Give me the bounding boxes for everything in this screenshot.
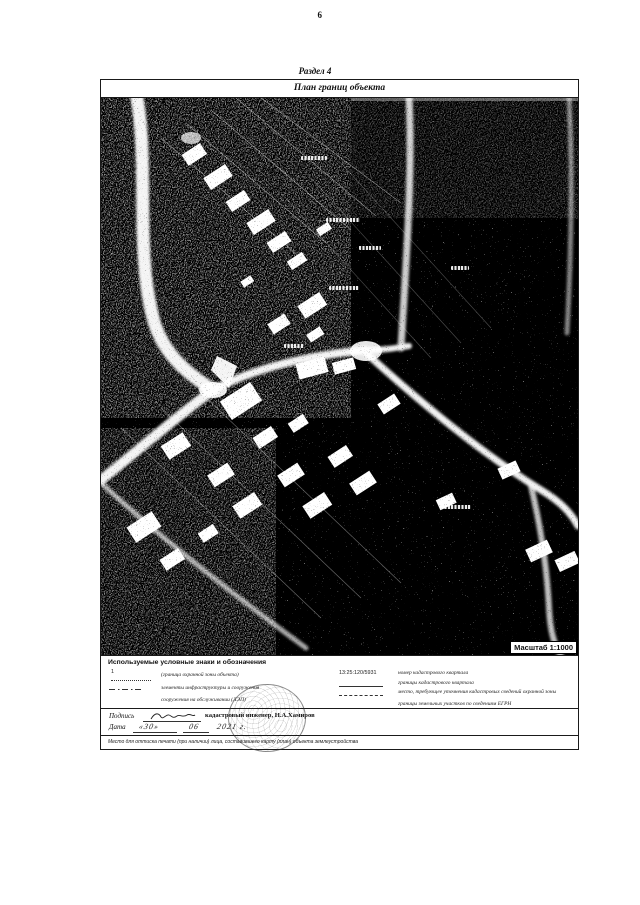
legend-item-label: границы кадастрового квартала: [398, 680, 474, 686]
legend-symbol-zone-number: 1: [111, 669, 114, 675]
scale-label: Масштаб 1:1000: [510, 641, 577, 654]
handwritten-date-month: 06: [188, 722, 200, 731]
signature-section: Подпись кадастровый инженер, Н.А.Хамиров…: [101, 709, 578, 736]
parcel-label-mark: [441, 505, 471, 509]
parcel-label-mark: [326, 218, 360, 222]
date-label: Дата: [109, 723, 126, 731]
parcel-label-mark: [284, 344, 304, 348]
plan-title: План границ объекта: [101, 80, 578, 98]
legend-header: Используемые условные знаки и обозначени…: [108, 659, 266, 666]
plan-frame: План границ объекта: [100, 79, 579, 750]
legend-symbol-clarification: [339, 694, 383, 696]
legend-item-label: (граница охранной зоны объекта): [161, 672, 239, 678]
parcel-label-mark: [451, 266, 469, 270]
round-stamp: [228, 684, 306, 752]
legend-symbol-infrastructure: [109, 689, 143, 690]
section-heading: Раздел 4: [100, 66, 530, 76]
stamp-note: Место для оттиска печати (при наличии) л…: [108, 739, 358, 745]
legend-item-text: номер кадастрового квартала: [398, 670, 468, 676]
legend-symbol-quarter-number: 13:25:120/5931: [339, 670, 376, 676]
legend-item-text: границы кадастрового квартала: [398, 680, 474, 686]
satellite-map: Масштаб 1:1000: [101, 98, 578, 656]
page-number: 6: [0, 10, 640, 20]
handwritten-signature: [149, 710, 197, 722]
legend-item-text: границы земельных участков по сведениям …: [398, 701, 511, 707]
legend-section: Используемые условные знаки и обозначени…: [101, 656, 578, 709]
parcel-label-mark: [301, 156, 327, 160]
legend-item-label: номер кадастрового квартала: [398, 670, 468, 676]
legend-item-text: место, требующее уточнения кадастровых с…: [398, 689, 556, 695]
legend-item-text: (граница охранной зоны объекта): [161, 672, 239, 678]
legend-item-label: место, требующее уточнения кадастровых с…: [398, 689, 556, 695]
stamp-note-row: Место для оттиска печати (при наличии) л…: [101, 736, 578, 750]
legend-symbol-quarter-boundary: [339, 685, 383, 687]
handwritten-date-day: «30»: [138, 722, 160, 731]
parcel-label-mark: [359, 246, 381, 250]
parcel-label-mark: [329, 286, 359, 290]
satellite-map-image: [101, 98, 578, 656]
date-line: [183, 731, 209, 733]
legend-symbol-zone-boundary: [111, 679, 151, 681]
legend-item-label: границы земельных участков по сведениям …: [398, 701, 511, 707]
signature-label: Подпись: [109, 712, 134, 720]
date-line: [133, 731, 177, 733]
